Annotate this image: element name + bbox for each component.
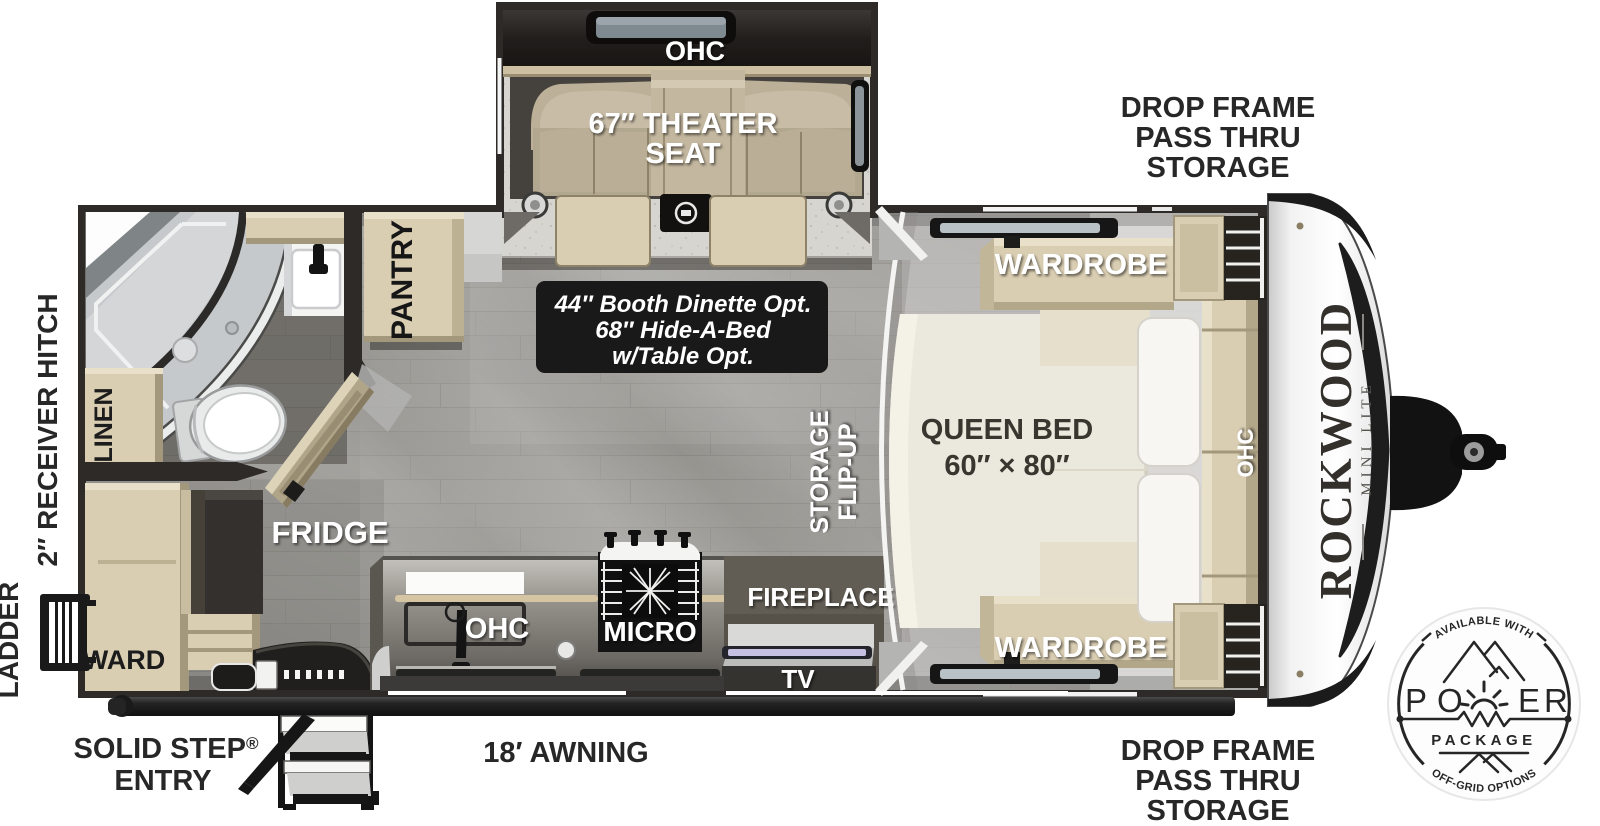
svg-text:OHC: OHC [465, 613, 530, 645]
svg-text:FRIDGE: FRIDGE [271, 515, 388, 550]
svg-text:LINEN: LINEN [90, 388, 118, 463]
svg-text:FIREPLACE: FIREPLACE [747, 582, 894, 612]
svg-text:18′ AWNING: 18′ AWNING [483, 737, 648, 769]
svg-text:PASS THRU: PASS THRU [1135, 765, 1300, 797]
svg-text:SOLID STEP®: SOLID STEP® [74, 733, 259, 765]
svg-text:w/Table Opt.: w/Table Opt. [612, 343, 754, 370]
svg-text:P: P [1405, 682, 1427, 719]
svg-text:E: E [1518, 682, 1540, 719]
svg-text:WARDROBE: WARDROBE [995, 632, 1167, 664]
svg-text:WARDROBE: WARDROBE [995, 249, 1167, 281]
svg-text:PACKAGE: PACKAGE [1431, 732, 1536, 749]
svg-text:2″ RECEIVER HITCH: 2″ RECEIVER HITCH [32, 293, 63, 566]
svg-text:OHC: OHC [665, 36, 725, 66]
svg-text:STORAGE: STORAGE [1147, 152, 1290, 184]
svg-text:STORAGE: STORAGE [1147, 795, 1290, 826]
svg-text:SEAT: SEAT [645, 138, 720, 170]
svg-text:67″ THEATER: 67″ THEATER [589, 108, 778, 140]
svg-text:DROP FRAME: DROP FRAME [1121, 92, 1315, 124]
svg-text:PANTRY: PANTRY [386, 220, 419, 340]
svg-text:60″ × 80″: 60″ × 80″ [944, 450, 1069, 482]
svg-text:R: R [1544, 682, 1568, 719]
svg-text:ENTRY: ENTRY [114, 765, 211, 797]
svg-text:OHC: OHC [1233, 428, 1258, 477]
svg-text:TV: TV [781, 664, 815, 694]
svg-text:FLIP-UP: FLIP-UP [834, 423, 862, 520]
svg-text:DROP FRAME: DROP FRAME [1121, 735, 1315, 767]
svg-text:LADDER: LADDER [0, 582, 24, 699]
svg-text:QUEEN BED: QUEEN BED [921, 414, 1093, 446]
svg-text:MINI LITE: MINI LITE [1359, 380, 1375, 495]
svg-text:PASS THRU: PASS THRU [1135, 122, 1300, 154]
svg-text:ROCKWOOD: ROCKWOOD [1311, 301, 1361, 600]
svg-text:68″ Hide-A-Bed: 68″ Hide-A-Bed [595, 317, 772, 344]
svg-text:STORAGE: STORAGE [806, 410, 834, 533]
svg-text:MICRO: MICRO [603, 616, 696, 647]
svg-text:44″ Booth Dinette Opt.: 44″ Booth Dinette Opt. [554, 291, 812, 318]
svg-text:O: O [1437, 682, 1463, 719]
